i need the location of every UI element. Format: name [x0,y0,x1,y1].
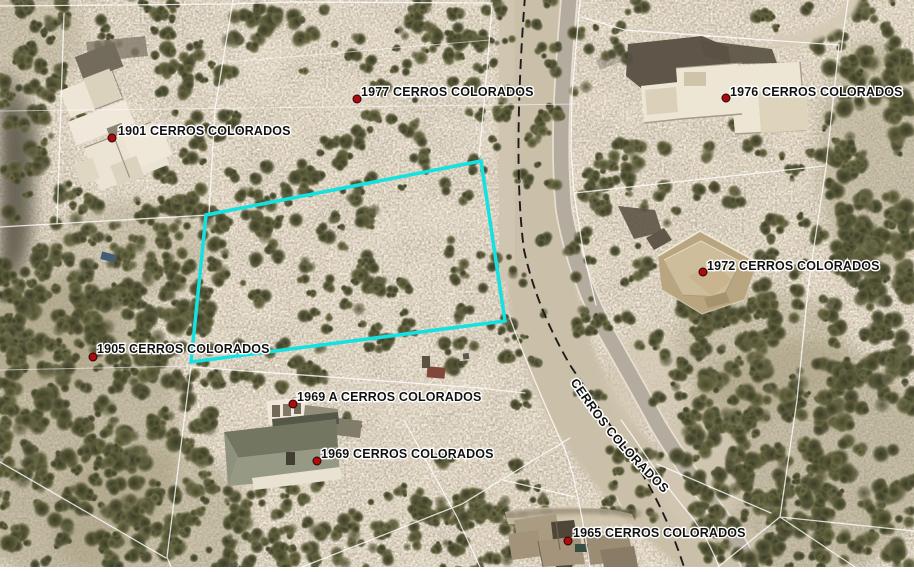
svg-text:1905 CERROS COLORADOS: 1905 CERROS COLORADOS [97,342,270,356]
svg-text:1977 CERROS COLORADOS: 1977 CERROS COLORADOS [361,85,534,99]
svg-text:1969 CERROS COLORADOS: 1969 CERROS COLORADOS [321,447,494,461]
svg-text:1901 CERROS COLORADOS: 1901 CERROS COLORADOS [118,124,291,138]
svg-text:1969 A CERROS COLORADOS: 1969 A CERROS COLORADOS [297,390,482,404]
svg-text:1965 CERROS COLORADOS: 1965 CERROS COLORADOS [573,526,746,540]
svg-text:1976 CERROS COLORADOS: 1976 CERROS COLORADOS [730,85,903,99]
svg-text:1972 CERROS COLORADOS: 1972 CERROS COLORADOS [707,259,880,273]
